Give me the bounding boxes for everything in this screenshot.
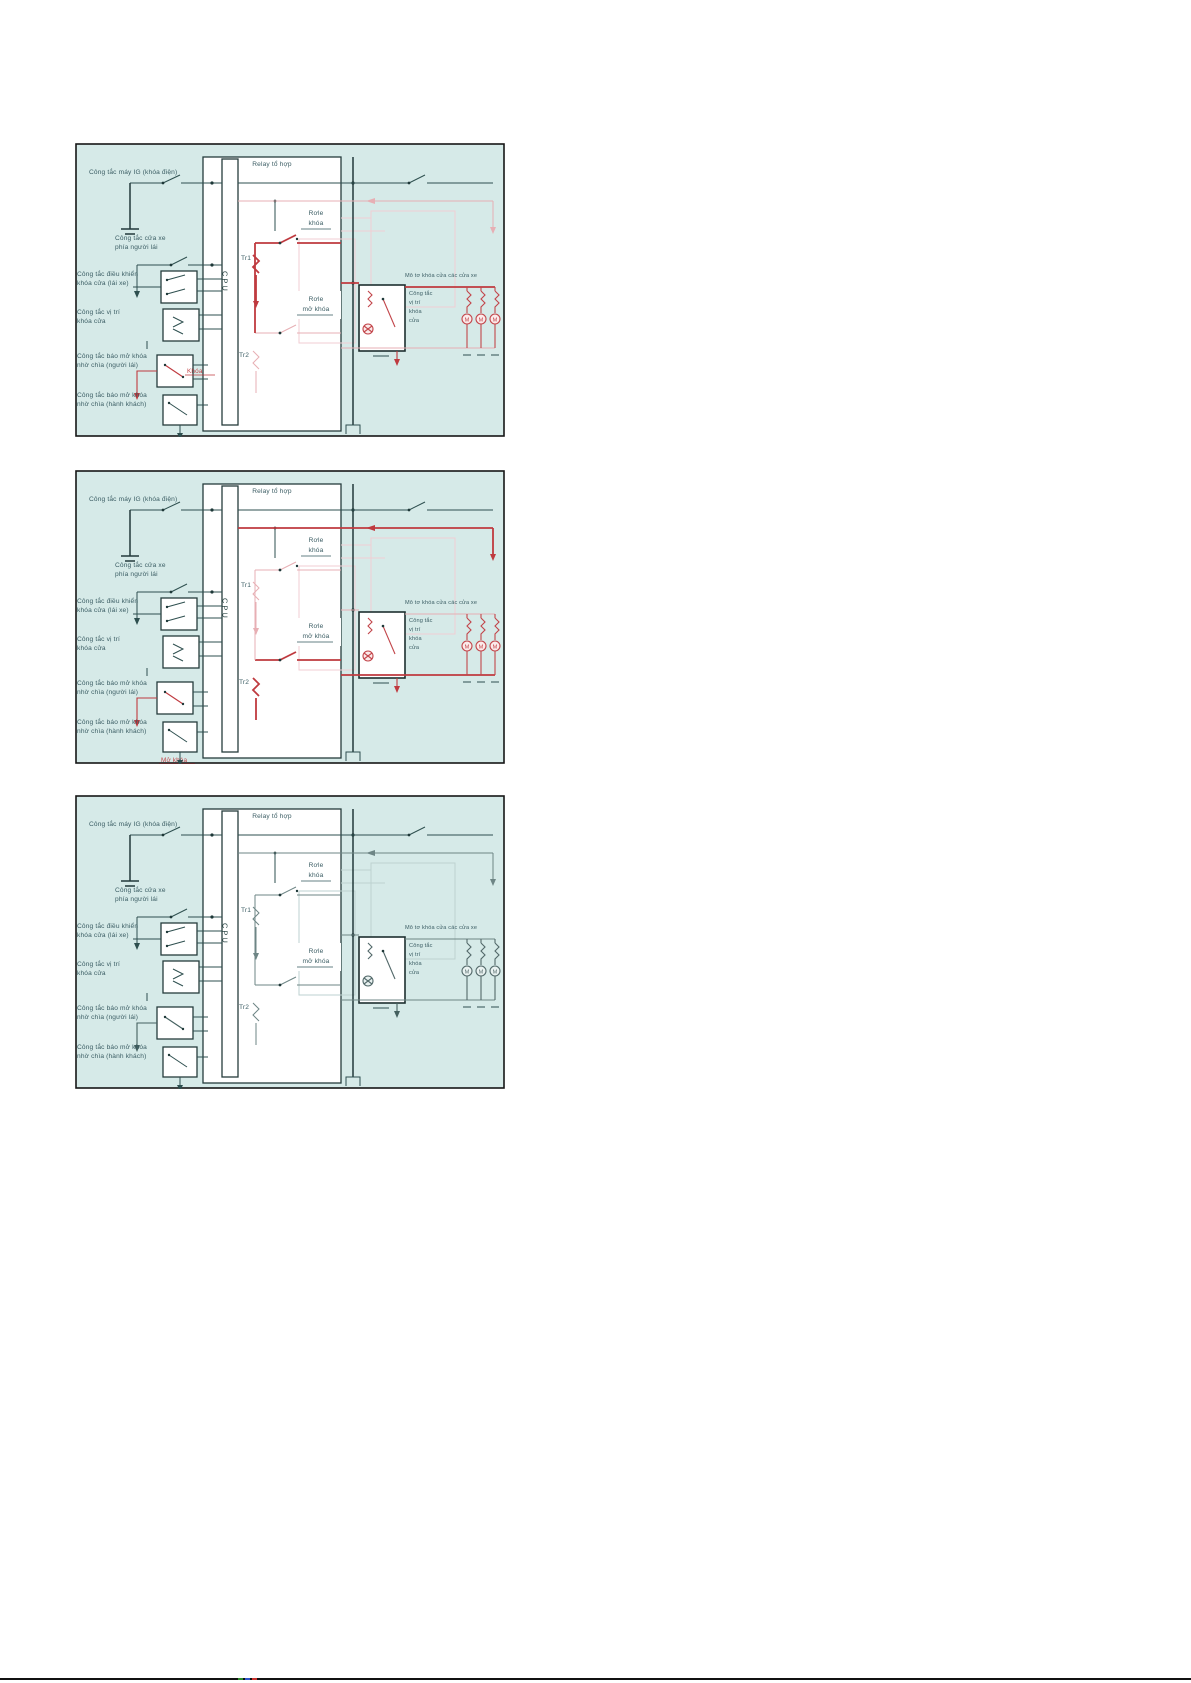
motor-m-label: M: [465, 970, 470, 976]
motor-switch-label-4: cửa: [409, 644, 420, 651]
cpu-label: CPU: [221, 271, 230, 293]
position-switch-label-1: Công tắc vị trí: [77, 634, 120, 643]
tr2-label: Tr2: [239, 679, 249, 686]
motor-m-label: M: [465, 645, 470, 651]
key-action-label: Khóa: [187, 368, 203, 375]
tr1-label: Tr1: [241, 582, 251, 589]
relay-title: Relay tổ hợp: [252, 487, 292, 495]
position-switch-label-2: khóa cửa: [77, 969, 106, 977]
lock-relay-label-1: Rơle: [309, 537, 324, 544]
motor-switch-label-3: khóa: [409, 636, 422, 642]
motor-m-label: M: [493, 645, 498, 651]
ig-switch-label: Công tắc máy IG (khóa điện): [89, 819, 177, 828]
diagram-panel-unlock-state: Relay tổ hợp CPU Công tắc máy IG (khóa đ…: [75, 470, 505, 764]
unlock-relay-label-2: mở khóa: [303, 305, 330, 313]
door-lock-schematic: Relay tổ hợp CPU Công tắc máy IG (khóa đ…: [75, 470, 505, 764]
key-passenger-label-1: Công tắc báo mở khóa: [77, 1042, 147, 1051]
key-passenger-label-2: nhờ chìa (hành khách): [77, 401, 146, 408]
key-passenger-label-2: nhờ chìa (hành khách): [77, 728, 146, 735]
motor-switch-label-2: vị trí: [409, 627, 421, 633]
lock-relay-label-1: Rơle: [309, 862, 324, 869]
door-switch-label-1: Công tắc cửa xe: [115, 885, 166, 894]
motor-switch-label-1: Công tắc: [409, 290, 433, 297]
lock-relay-label-1: Rơle: [309, 210, 324, 217]
motor-header-label: Mô tơ khóa cửa các cửa xe: [405, 924, 477, 931]
motor-switch-label-1: Công tắc: [409, 617, 433, 624]
position-switch-label-1: Công tắc vị trí: [77, 307, 120, 316]
motor-m-label: M: [479, 645, 484, 651]
motor-switch-label-2: vị trí: [409, 952, 421, 958]
door-lock-schematic: Relay tổ hợp CPU Công tắc máy IG (khóa đ…: [75, 795, 505, 1089]
key-driver-label-2: nhờ chìa (người lái): [77, 362, 138, 369]
position-switch-label-2: khóa cửa: [77, 317, 106, 325]
motor-m-label: M: [493, 970, 498, 976]
position-switch-label-2: khóa cửa: [77, 644, 106, 652]
key-driver-label-1: Công tắc báo mở khóa: [77, 1003, 147, 1012]
unlock-relay-label-2: mở khóa: [303, 957, 330, 965]
footer-mark-red: [252, 1678, 257, 1680]
relay-title: Relay tổ hợp: [252, 160, 292, 168]
motor-m-label: M: [479, 970, 484, 976]
footer-mark-green: [238, 1678, 243, 1680]
lock-relay-label-2: khóa: [309, 547, 324, 554]
unlock-relay-label-1: Rơle: [309, 948, 324, 955]
diagram-panel-lock-state: Relay tổ hợp CPU Công tắc máy IG (khóa đ…: [75, 143, 505, 437]
motor-switch-label-3: khóa: [409, 961, 422, 967]
relay-title: Relay tổ hợp: [252, 812, 292, 820]
key-driver-label-2: nhờ chìa (người lái): [77, 689, 138, 696]
motor-switch-label-1: Công tắc: [409, 942, 433, 949]
footer-mark-blue: [245, 1678, 250, 1680]
lock-control-label-1: Công tắc điều khiển: [77, 269, 138, 278]
lock-relay-label-2: khóa: [309, 220, 324, 227]
page-footer-rule: [0, 1678, 1191, 1680]
door-switch-label-2: phía người lái: [115, 571, 158, 578]
door-switch-label-2: phía người lái: [115, 896, 158, 903]
door-switch-label-1: Công tắc cửa xe: [115, 560, 166, 569]
unlock-relay-label-2: mở khóa: [303, 632, 330, 640]
tr2-label: Tr2: [239, 352, 249, 359]
key-driver-label-1: Công tắc báo mở khóa: [77, 678, 147, 687]
lock-relay-label-2: khóa: [309, 872, 324, 879]
motor-m-label: M: [465, 318, 470, 324]
lock-control-label-2: khóa cửa (lái xe): [77, 931, 129, 939]
lock-control-label-2: khóa cửa (lái xe): [77, 606, 129, 614]
key-passenger-label-1: Công tắc báo mở khóa: [77, 390, 147, 399]
motor-header-label: Mô tơ khóa cửa các cửa xe: [405, 599, 477, 606]
lock-control-label-1: Công tắc điều khiển: [77, 596, 138, 605]
unlock-relay-label-1: Rơle: [309, 623, 324, 630]
cpu-label: CPU: [221, 598, 230, 620]
motor-switch-label-4: cửa: [409, 969, 420, 976]
motor-switch-label-2: vị trí: [409, 300, 421, 306]
position-switch-label-1: Công tắc vị trí: [77, 959, 120, 968]
tr1-label: Tr1: [241, 907, 251, 914]
key-action-label: Mở khóa: [161, 756, 187, 764]
lock-control-label-1: Công tắc điều khiển: [77, 921, 138, 930]
key-driver-label-2: nhờ chìa (người lái): [77, 1014, 138, 1021]
diagram-panel-neutral-state: Relay tổ hợp CPU Công tắc máy IG (khóa đ…: [75, 795, 505, 1089]
motor-m-label: M: [479, 318, 484, 324]
cpu-label: CPU: [221, 923, 230, 945]
door-lock-schematic: Relay tổ hợp CPU Công tắc máy IG (khóa đ…: [75, 143, 505, 437]
lock-control-label-2: khóa cửa (lái xe): [77, 279, 129, 287]
tr1-label: Tr1: [241, 255, 251, 262]
motor-switch-label-3: khóa: [409, 309, 422, 315]
door-switch-label-1: Công tắc cửa xe: [115, 233, 166, 242]
ig-switch-label: Công tắc máy IG (khóa điện): [89, 494, 177, 503]
document-page: { "diagram": { "labels": { "ig_switch": …: [0, 0, 1191, 1683]
tr2-label: Tr2: [239, 1004, 249, 1011]
motor-header-label: Mô tơ khóa cửa các cửa xe: [405, 272, 477, 279]
key-passenger-label-2: nhờ chìa (hành khách): [77, 1053, 146, 1060]
motor-switch-label-4: cửa: [409, 317, 420, 324]
key-driver-label-1: Công tắc báo mở khóa: [77, 351, 147, 360]
motor-m-label: M: [493, 318, 498, 324]
ig-switch-label: Công tắc máy IG (khóa điện): [89, 167, 177, 176]
unlock-relay-label-1: Rơle: [309, 296, 324, 303]
key-passenger-label-1: Công tắc báo mở khóa: [77, 717, 147, 726]
door-switch-label-2: phía người lái: [115, 244, 158, 251]
